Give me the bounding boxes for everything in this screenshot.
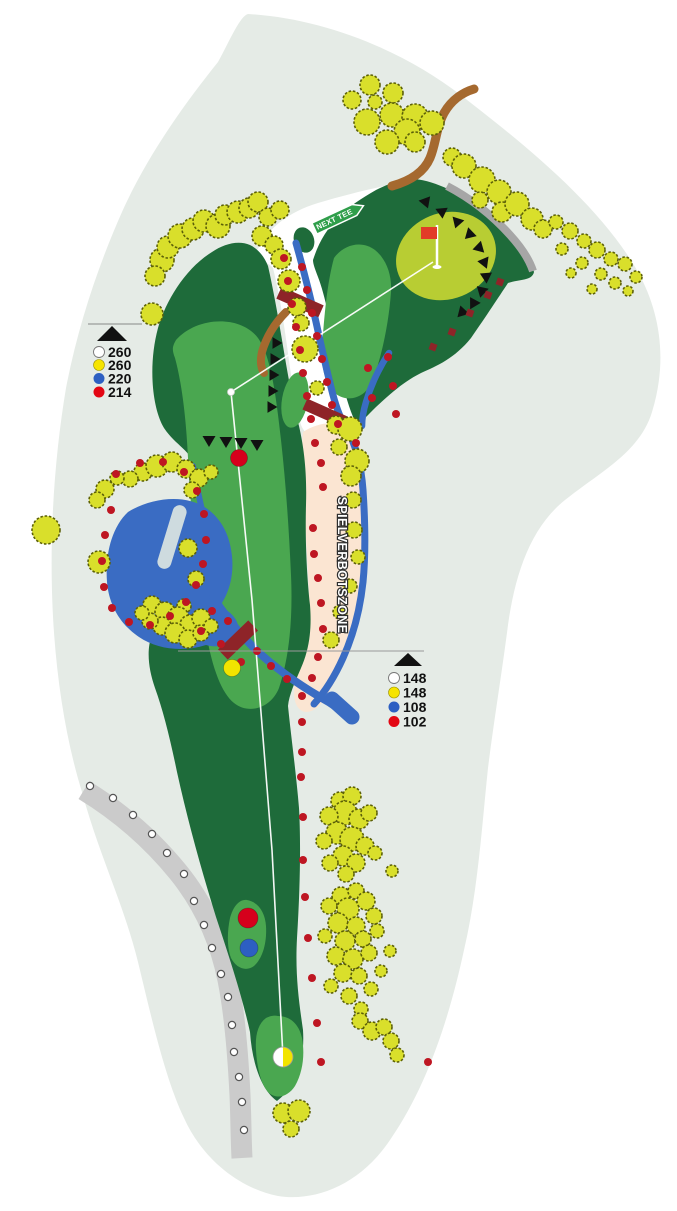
tree-icon [368, 846, 382, 860]
tree-icon [589, 242, 605, 258]
white-tee-icon [94, 347, 105, 358]
tree-icon [390, 1048, 404, 1062]
tree-icon [341, 988, 357, 1004]
tree-icon [386, 865, 398, 877]
tree-icon [587, 284, 597, 294]
ob-stake [200, 921, 207, 928]
hazard-dot [125, 618, 133, 626]
yellow-tee-icon [94, 360, 105, 371]
hazard-dot [317, 459, 325, 467]
hazard-dot [319, 483, 327, 491]
tree-icon [179, 539, 197, 557]
yellow-distance-marker [224, 660, 241, 677]
tree-icon [577, 234, 591, 248]
hazard-dot [301, 893, 309, 901]
tree-icon [204, 619, 218, 633]
no-play-zone-label: SPIELVERBOTSZONE [335, 497, 349, 634]
ob-stake [129, 811, 136, 818]
flag-icon [421, 227, 437, 239]
hazard-dot [159, 458, 167, 466]
tree-icon [595, 268, 607, 280]
hazard-dot [296, 346, 304, 354]
tree-icon [283, 1121, 299, 1137]
tree-icon [135, 606, 149, 620]
hazard-dot [200, 510, 208, 518]
red-tee-icon [94, 387, 105, 398]
tree-icon [343, 91, 361, 109]
tree-icon [323, 632, 339, 648]
hazard-dot [310, 550, 318, 558]
hazard-dot [304, 934, 312, 942]
ob-stake [235, 1073, 242, 1080]
hazard-dot [368, 394, 376, 402]
hazard-dot [136, 459, 144, 467]
tree-icon [366, 908, 382, 924]
tree-icon [316, 833, 332, 849]
hazard-dot [107, 506, 115, 514]
hazard-dot [334, 420, 342, 428]
hazard-dot [364, 364, 372, 372]
hazard-dot [208, 607, 216, 615]
hazard-dot [308, 309, 316, 317]
tree-icon [405, 132, 425, 152]
ob-stake [224, 993, 231, 1000]
tree-icon [576, 257, 588, 269]
tree-icon [618, 257, 632, 271]
hazard-dot [299, 813, 307, 821]
tree-icon [384, 945, 396, 957]
tree-icon [361, 805, 377, 821]
yellow-tee-icon [389, 687, 400, 698]
tree-icon [338, 866, 354, 882]
hazard-dot [280, 254, 288, 262]
hazard-dot [303, 286, 311, 294]
ob-stake [228, 1021, 235, 1028]
tree-icon [328, 913, 348, 933]
hazard-dot [98, 557, 106, 565]
tree-icon [310, 381, 324, 395]
tree-icon [383, 1033, 399, 1049]
hazard-dot [192, 581, 200, 589]
red-distance-marker [231, 450, 248, 467]
hazard-dot [328, 401, 336, 409]
hazard-dot [317, 599, 325, 607]
tree-icon [318, 929, 332, 943]
tree-icon [324, 979, 338, 993]
hazard-dot [318, 355, 326, 363]
ob-stake [180, 870, 187, 877]
tree-icon [322, 855, 338, 871]
tree-icon [355, 931, 371, 947]
ob-stake [230, 1048, 237, 1055]
hazard-dot [317, 1058, 325, 1066]
tree-icon [604, 252, 618, 266]
hazard-dot [314, 574, 322, 582]
tree-icon [549, 215, 563, 229]
red-tee-icon [389, 716, 400, 727]
hazard-dot [299, 369, 307, 377]
hazard-dot [224, 617, 232, 625]
hazard-dot [309, 524, 317, 532]
blue-tee-spot [240, 939, 258, 957]
ob-stake [240, 1126, 247, 1133]
hazard-dot [199, 560, 207, 568]
hazard-dot [303, 392, 311, 400]
hazard-dot [180, 468, 188, 476]
hazard-dot [101, 531, 109, 539]
tree-icon [420, 111, 444, 135]
tree-icon [623, 286, 633, 296]
hazard-dot [319, 625, 327, 633]
hazard-dot [299, 856, 307, 864]
course-map-canvas: NEXT TEE SPIELVERBOTSZONE 260 260 220 21… [0, 0, 677, 1211]
hazard-dot [424, 1058, 432, 1066]
white-tee-icon [389, 673, 400, 684]
tree-icon [292, 336, 318, 362]
hazard-dot [323, 378, 331, 386]
tree-icon [360, 75, 380, 95]
hazard-dot [389, 382, 397, 390]
tree-icon [375, 965, 387, 977]
tree-icon [271, 201, 289, 219]
tree-icon [361, 945, 377, 961]
tree-icon [341, 466, 361, 486]
tree-icon [357, 892, 375, 910]
tree-icon [145, 266, 165, 286]
tree-icon [334, 964, 352, 982]
hazard-dot [311, 439, 319, 447]
legend-value: 214 [108, 384, 132, 400]
hazard-dot [193, 487, 201, 495]
hazard-dot [283, 675, 291, 683]
hazard-dot [313, 332, 321, 340]
hazard-dot [284, 277, 292, 285]
blue-tee-icon [94, 373, 105, 384]
hazard-dot [100, 583, 108, 591]
hazard-dot [384, 353, 392, 361]
ob-stake [238, 1098, 245, 1105]
hazard-dot [314, 653, 322, 661]
legend-value: 102 [403, 714, 427, 730]
tree-icon [472, 192, 488, 208]
tree-icon [204, 465, 218, 479]
ob-stake [109, 794, 116, 801]
ob-stake [217, 970, 224, 977]
tree-icon [351, 968, 367, 984]
tree-icon [351, 550, 365, 564]
hazard-dot [166, 612, 174, 620]
hazard-dot [267, 662, 275, 670]
hazard-dot [288, 300, 296, 308]
hazard-dot [292, 323, 300, 331]
blue-tee-icon [389, 702, 400, 713]
tree-icon [354, 109, 380, 135]
tree-icon [609, 277, 621, 289]
ob-stake [148, 830, 155, 837]
ob-stake [190, 897, 197, 904]
hazard-dot [308, 674, 316, 682]
tree-icon [32, 516, 60, 544]
hazard-dot [392, 410, 400, 418]
hazard-dot [197, 627, 205, 635]
dogleg-point [228, 389, 235, 396]
tree-icon [288, 1100, 310, 1122]
hazard-dot [313, 1019, 321, 1027]
tree-icon [321, 898, 337, 914]
golf-hole-map: NEXT TEE SPIELVERBOTSZONE 260 260 220 21… [0, 0, 677, 1211]
red-tee-spot [238, 908, 258, 928]
hazard-dot [307, 415, 315, 423]
tree-icon [368, 95, 382, 109]
tree-icon [327, 947, 345, 965]
tree-icon [89, 492, 105, 508]
tree-icon [364, 982, 378, 996]
hazard-dot [298, 692, 306, 700]
tree-icon [141, 303, 163, 325]
hazard-dot [297, 773, 305, 781]
ob-stake [208, 944, 215, 951]
hazard-dot [202, 536, 210, 544]
ob-stake [163, 849, 170, 856]
flag-base [433, 265, 442, 269]
hazard-dot [182, 598, 190, 606]
hazard-dot [298, 718, 306, 726]
tree-icon [375, 130, 399, 154]
hazard-dot [146, 621, 154, 629]
ob-stake [86, 782, 93, 789]
tree-icon [562, 223, 578, 239]
tree-icon [370, 924, 384, 938]
hazard-dot [298, 263, 306, 271]
hazard-dot [298, 748, 306, 756]
tree-icon [338, 417, 362, 441]
hazard-dot [308, 974, 316, 982]
tree-icon [331, 439, 347, 455]
tree-icon [566, 268, 576, 278]
hazard-dot [352, 439, 360, 447]
tree-icon [556, 243, 568, 255]
hazard-dot [108, 604, 116, 612]
tree-icon [630, 271, 642, 283]
hazard-dot [112, 470, 120, 478]
tree-icon [383, 83, 403, 103]
hazard-dot [217, 640, 225, 648]
